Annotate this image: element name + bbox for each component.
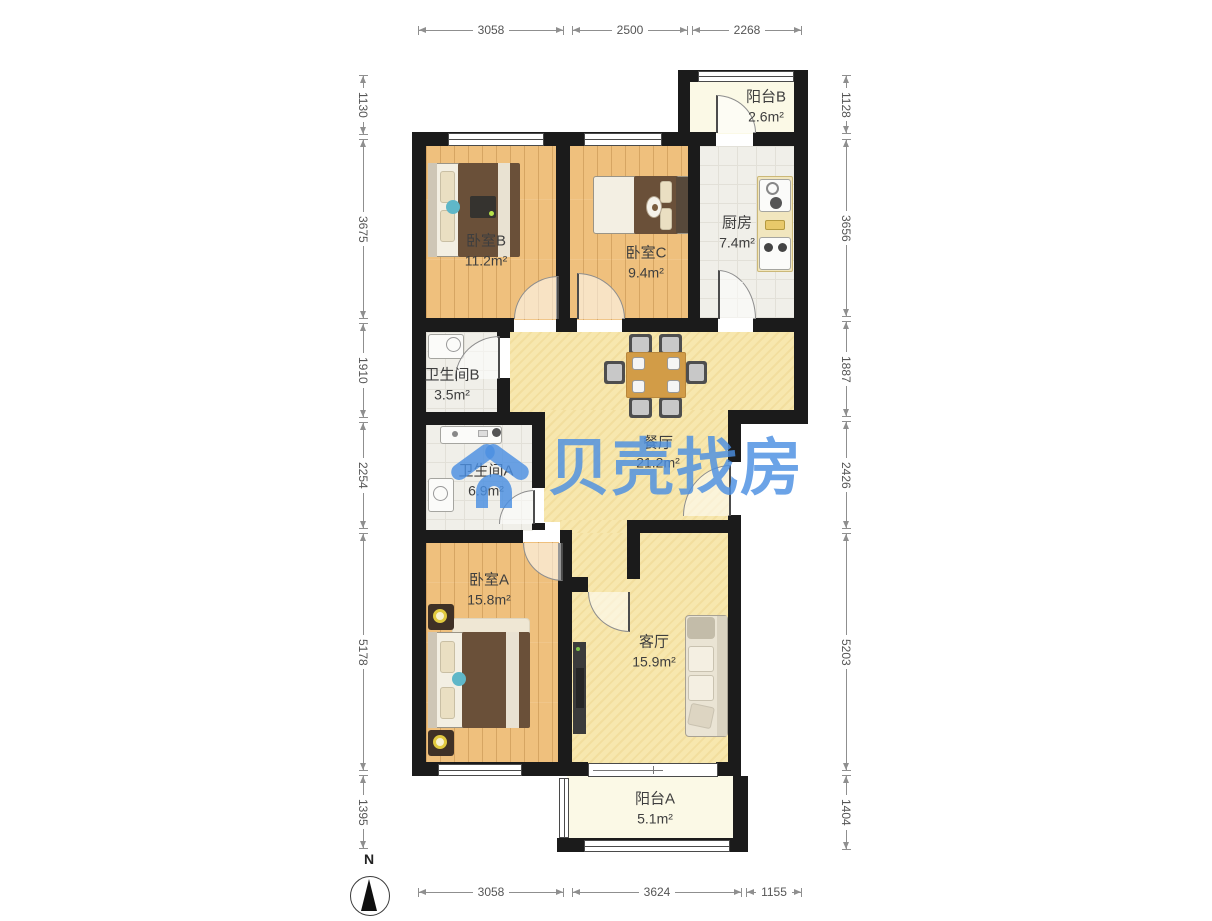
wall: [532, 425, 545, 488]
sofa-cushion: [688, 646, 714, 672]
dim-line: [846, 245, 847, 316]
window: [559, 778, 569, 838]
bed-cushion-icon: [452, 672, 466, 686]
wall: [412, 318, 514, 332]
dim-line: [363, 246, 364, 318]
lamp-icon: [433, 609, 447, 623]
window: [448, 133, 544, 146]
dim-value: 5178: [356, 639, 370, 666]
pillow-icon: [440, 171, 455, 203]
dimension-left-2: 3675: [355, 139, 371, 319]
wall: [556, 318, 577, 332]
dim-line: [792, 892, 801, 893]
dim-value: 3058: [478, 23, 505, 37]
dimension-right-2: 3656: [838, 139, 854, 317]
dimension-bottom-2: 3624: [572, 884, 742, 900]
wall: [753, 318, 808, 332]
dim-line: [846, 534, 847, 635]
wall: [627, 520, 741, 533]
dim-line: [846, 322, 847, 352]
dim-line: [363, 776, 364, 795]
soap-dish-icon: [478, 430, 488, 437]
dim-value: 1887: [839, 356, 853, 383]
dim-line: [509, 30, 563, 31]
dimension-left-3: 1910: [355, 323, 371, 418]
room-area: 21.2m²: [636, 453, 680, 471]
dim-value: 3675: [356, 216, 370, 243]
dim-line: [573, 892, 639, 893]
pillow-icon: [440, 641, 455, 673]
pillow-icon: [660, 181, 672, 203]
bed-runner: [506, 632, 519, 728]
dim-value: 1155: [761, 885, 787, 899]
chair-seat: [607, 364, 622, 381]
dim-line: [363, 423, 364, 458]
window: [584, 840, 730, 852]
room-label-bedroom-c: 卧室C 9.4m²: [626, 242, 667, 281]
burner-icon: [764, 243, 773, 252]
wall: [532, 523, 545, 530]
dim-value: 1130: [356, 92, 370, 118]
dim-line: [846, 830, 847, 849]
wall: [728, 424, 741, 462]
pillow-icon: [440, 687, 455, 719]
chair-seat: [662, 400, 679, 415]
room-label-balcony-a: 阳台A 5.1m²: [635, 788, 675, 827]
plate-icon: [632, 380, 645, 393]
dining-chair-icon: [659, 397, 682, 418]
burner-icon: [778, 243, 787, 252]
dim-line: [648, 30, 687, 31]
room-area: 2.6m²: [746, 107, 786, 125]
dim-value: 1910: [356, 357, 370, 384]
dim-value: 2500: [617, 23, 644, 37]
lamp-icon: [433, 735, 447, 749]
dim-line: [363, 493, 364, 528]
wall: [412, 530, 523, 543]
sofa-cushion: [688, 675, 714, 701]
room-area: 15.9m²: [632, 652, 676, 670]
toilet-bowl: [433, 486, 448, 501]
dim-line: [846, 121, 847, 133]
bed-headboard: [428, 632, 437, 728]
dim-line: [363, 669, 364, 770]
north-arrow-icon: [361, 879, 377, 911]
wall: [622, 318, 718, 332]
room-name: 客厅: [632, 631, 676, 652]
wall: [560, 530, 572, 543]
chair-seat: [632, 337, 649, 352]
dim-line: [509, 892, 563, 893]
tv-screen: [576, 668, 584, 708]
dim-line: [419, 30, 473, 31]
room-area: 6.9m²: [458, 481, 513, 499]
dim-line: [846, 669, 847, 770]
dim-value: 1404: [839, 799, 853, 826]
room-label-balcony-b: 阳台B 2.6m²: [746, 86, 786, 125]
dim-line: [846, 422, 847, 458]
bed-decor-dot: [652, 204, 658, 211]
faucet-icon: [766, 182, 779, 195]
wall: [572, 762, 588, 776]
basin-icon: [770, 197, 782, 209]
room-name: 卫生间B: [424, 364, 479, 385]
stove-icon: [759, 237, 791, 270]
room-area: 9.4m²: [626, 263, 667, 281]
wall: [678, 82, 690, 132]
room-name: 卫生间A: [458, 460, 513, 481]
sofa-armrest: [687, 617, 715, 639]
dim-line: [846, 386, 847, 416]
dining-chair-icon: [604, 361, 625, 384]
wall: [688, 146, 700, 318]
dim-line: [363, 76, 364, 88]
room-label-dining: 餐厅 21.2m²: [636, 432, 680, 471]
window: [584, 133, 662, 146]
indicator-dot: [576, 647, 580, 651]
room-area: 5.1m²: [635, 809, 675, 827]
dimension-top-3: 2268: [692, 22, 802, 38]
dim-value: 5203: [839, 639, 853, 666]
dim-line: [573, 30, 612, 31]
chair-seat: [689, 364, 704, 381]
chair-seat: [662, 337, 679, 352]
dim-value: 2426: [839, 462, 853, 489]
pillow-icon: [440, 210, 455, 242]
wall: [794, 146, 808, 410]
wall: [412, 132, 426, 776]
dimension-left-4: 2254: [355, 422, 371, 529]
room-area: 3.5m²: [424, 385, 479, 403]
dim-line: [363, 122, 364, 134]
dimension-left-1: 1130: [355, 75, 371, 135]
dim-line: [765, 30, 801, 31]
dimension-right-4: 2426: [838, 421, 854, 529]
dimension-bottom-1: 3058: [418, 884, 564, 900]
cutting-board-icon: [765, 220, 785, 230]
dimension-top-1: 3058: [418, 22, 564, 38]
room-name: 卧室C: [626, 242, 667, 263]
dining-chair-icon: [629, 397, 652, 418]
room-label-bath-a: 卫生间A 6.9m²: [458, 460, 513, 499]
plate-icon: [667, 380, 680, 393]
dimension-right-1: 1128: [838, 75, 854, 134]
room-name: 卧室A: [467, 569, 511, 590]
room-area: 15.8m²: [467, 590, 511, 608]
room-name: 餐厅: [636, 432, 680, 453]
dimension-right-5: 5203: [838, 533, 854, 771]
dim-value: 3624: [644, 885, 671, 899]
dimension-left-6: 1395: [355, 775, 371, 849]
dim-value: 1395: [356, 799, 370, 826]
room-label-living: 客厅 15.9m²: [632, 631, 676, 670]
room-name: 阳台A: [635, 788, 675, 809]
dimension-top-2: 2500: [572, 22, 688, 38]
chair-seat: [632, 400, 649, 415]
bed-headboard: [428, 163, 437, 257]
dim-line: [363, 388, 364, 417]
dim-line: [846, 492, 847, 528]
room-label-bath-b: 卫生间B 3.5m²: [424, 364, 479, 403]
dimension-bottom-3: 1155: [746, 884, 802, 900]
wall: [728, 515, 741, 776]
dim-line: [747, 892, 756, 893]
floorplan-page: { "watermark": { "brand_text": "贝壳找房", "…: [0, 0, 1212, 921]
wall: [728, 410, 808, 424]
bed-cushion-icon: [446, 200, 460, 214]
dim-value: 2254: [356, 462, 370, 489]
room-name: 厨房: [719, 212, 755, 233]
dimension-left-5: 5178: [355, 533, 371, 771]
room-area: 11.2m²: [465, 251, 508, 269]
dim-value: 1128: [839, 92, 853, 118]
dim-line: [363, 324, 364, 353]
plate-icon: [667, 357, 680, 370]
room-area: 7.4m²: [719, 233, 755, 251]
dim-line: [363, 140, 364, 212]
room-label-bedroom-b: 卧室B 11.2m²: [465, 230, 508, 269]
dim-line: [363, 829, 364, 848]
indicator-dot: [489, 211, 494, 216]
sofa-back: [717, 616, 727, 736]
dim-line: [846, 140, 847, 211]
wall: [412, 412, 545, 425]
pillow-icon: [660, 208, 672, 230]
compass-north-label: N: [364, 851, 374, 867]
dim-line: [846, 776, 847, 795]
sliding-door: [588, 763, 718, 777]
faucet-icon: [452, 431, 458, 437]
window: [438, 764, 522, 776]
dim-line: [693, 30, 729, 31]
dimension-right-3: 1887: [838, 321, 854, 417]
bed-duvet: [462, 632, 530, 728]
plate-icon: [632, 357, 645, 370]
washer-drum: [446, 337, 461, 352]
dimension-right-6: 1404: [838, 775, 854, 850]
room-label-bedroom-a: 卧室A 15.8m²: [467, 569, 511, 608]
dim-line: [363, 534, 364, 635]
dim-value: 3058: [478, 885, 505, 899]
drain-icon: [492, 428, 501, 437]
wall: [627, 533, 640, 579]
room-name: 阳台B: [746, 86, 786, 107]
sofa-cushion: [687, 703, 715, 730]
dim-line: [675, 892, 741, 893]
dim-line: [419, 892, 473, 893]
dim-line: [846, 76, 847, 88]
wall: [497, 378, 510, 412]
window: [698, 71, 794, 82]
room-name: 卧室B: [465, 230, 508, 251]
wall: [794, 70, 808, 146]
dim-value: 2268: [734, 23, 761, 37]
dim-value: 3656: [839, 215, 853, 242]
room-label-kitchen: 厨房 7.4m²: [719, 212, 755, 251]
dining-chair-icon: [686, 361, 707, 384]
